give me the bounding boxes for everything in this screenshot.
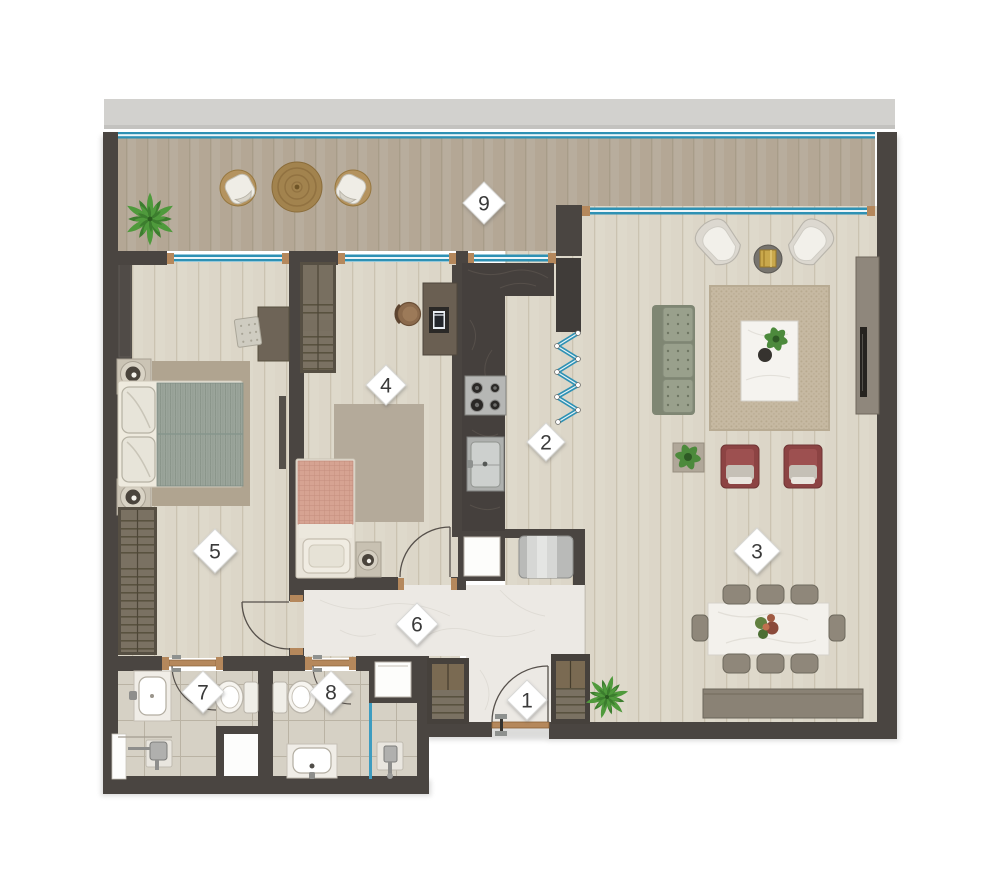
svg-text:5: 5 bbox=[209, 541, 221, 564]
svg-text:6: 6 bbox=[411, 614, 423, 637]
svg-text:2: 2 bbox=[540, 432, 552, 455]
svg-text:9: 9 bbox=[478, 193, 490, 216]
svg-text:3: 3 bbox=[751, 541, 763, 564]
svg-text:4: 4 bbox=[380, 375, 392, 398]
svg-text:7: 7 bbox=[197, 682, 209, 705]
svg-text:1: 1 bbox=[521, 690, 533, 713]
svg-text:8: 8 bbox=[325, 682, 337, 705]
